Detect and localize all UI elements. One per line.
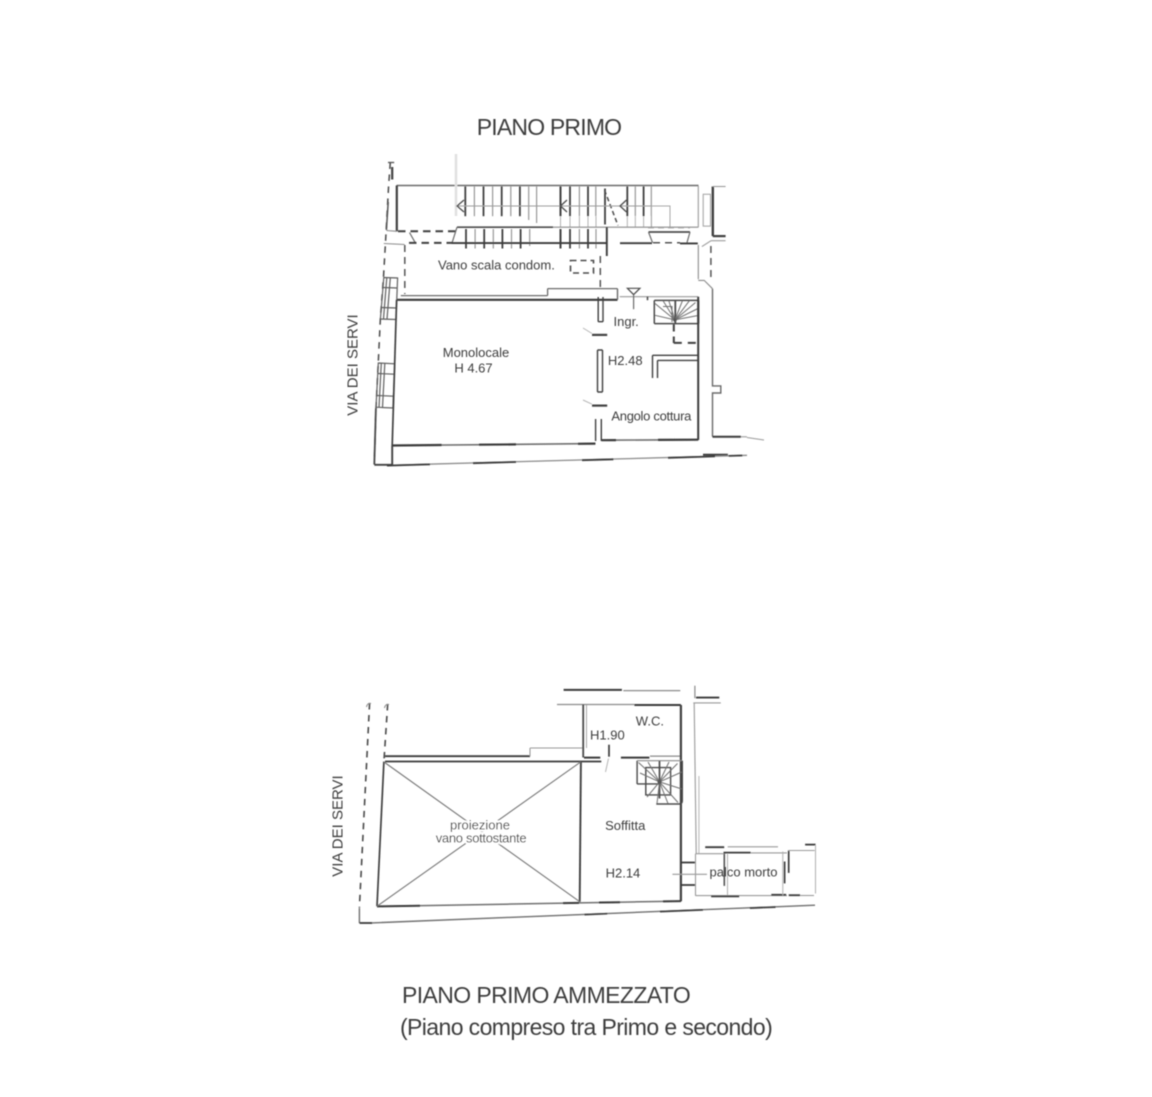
svg-text:vano sottostante: vano sottostante [436, 831, 527, 846]
svg-text:PIANO PRIMO: PIANO PRIMO [477, 114, 622, 140]
svg-text:Angolo cottura: Angolo cottura [611, 408, 692, 423]
svg-text:palco morto: palco morto [710, 865, 778, 880]
svg-text:Ingr.: Ingr. [614, 314, 639, 329]
svg-text:Soffitta: Soffitta [605, 818, 646, 833]
svg-text:Monolocale: Monolocale [443, 345, 510, 360]
svg-text:(Piano compreso tra Primo e se: (Piano compreso tra Primo e secondo) [400, 1014, 772, 1040]
svg-text:VIA DEI SERVI: VIA DEI SERVI [330, 775, 347, 876]
svg-text:VIA DEI SERVI: VIA DEI SERVI [345, 314, 362, 415]
svg-text:W.C.: W.C. [636, 714, 664, 729]
svg-text:H2.48: H2.48 [608, 353, 643, 368]
svg-text:H1.90: H1.90 [590, 728, 625, 743]
svg-text:H 4.67: H 4.67 [454, 360, 492, 375]
svg-text:Vano scala condom.: Vano scala condom. [438, 258, 555, 273]
svg-text:H2.14: H2.14 [606, 866, 641, 881]
svg-text:PIANO PRIMO AMMEZZATO: PIANO PRIMO AMMEZZATO [402, 982, 690, 1008]
